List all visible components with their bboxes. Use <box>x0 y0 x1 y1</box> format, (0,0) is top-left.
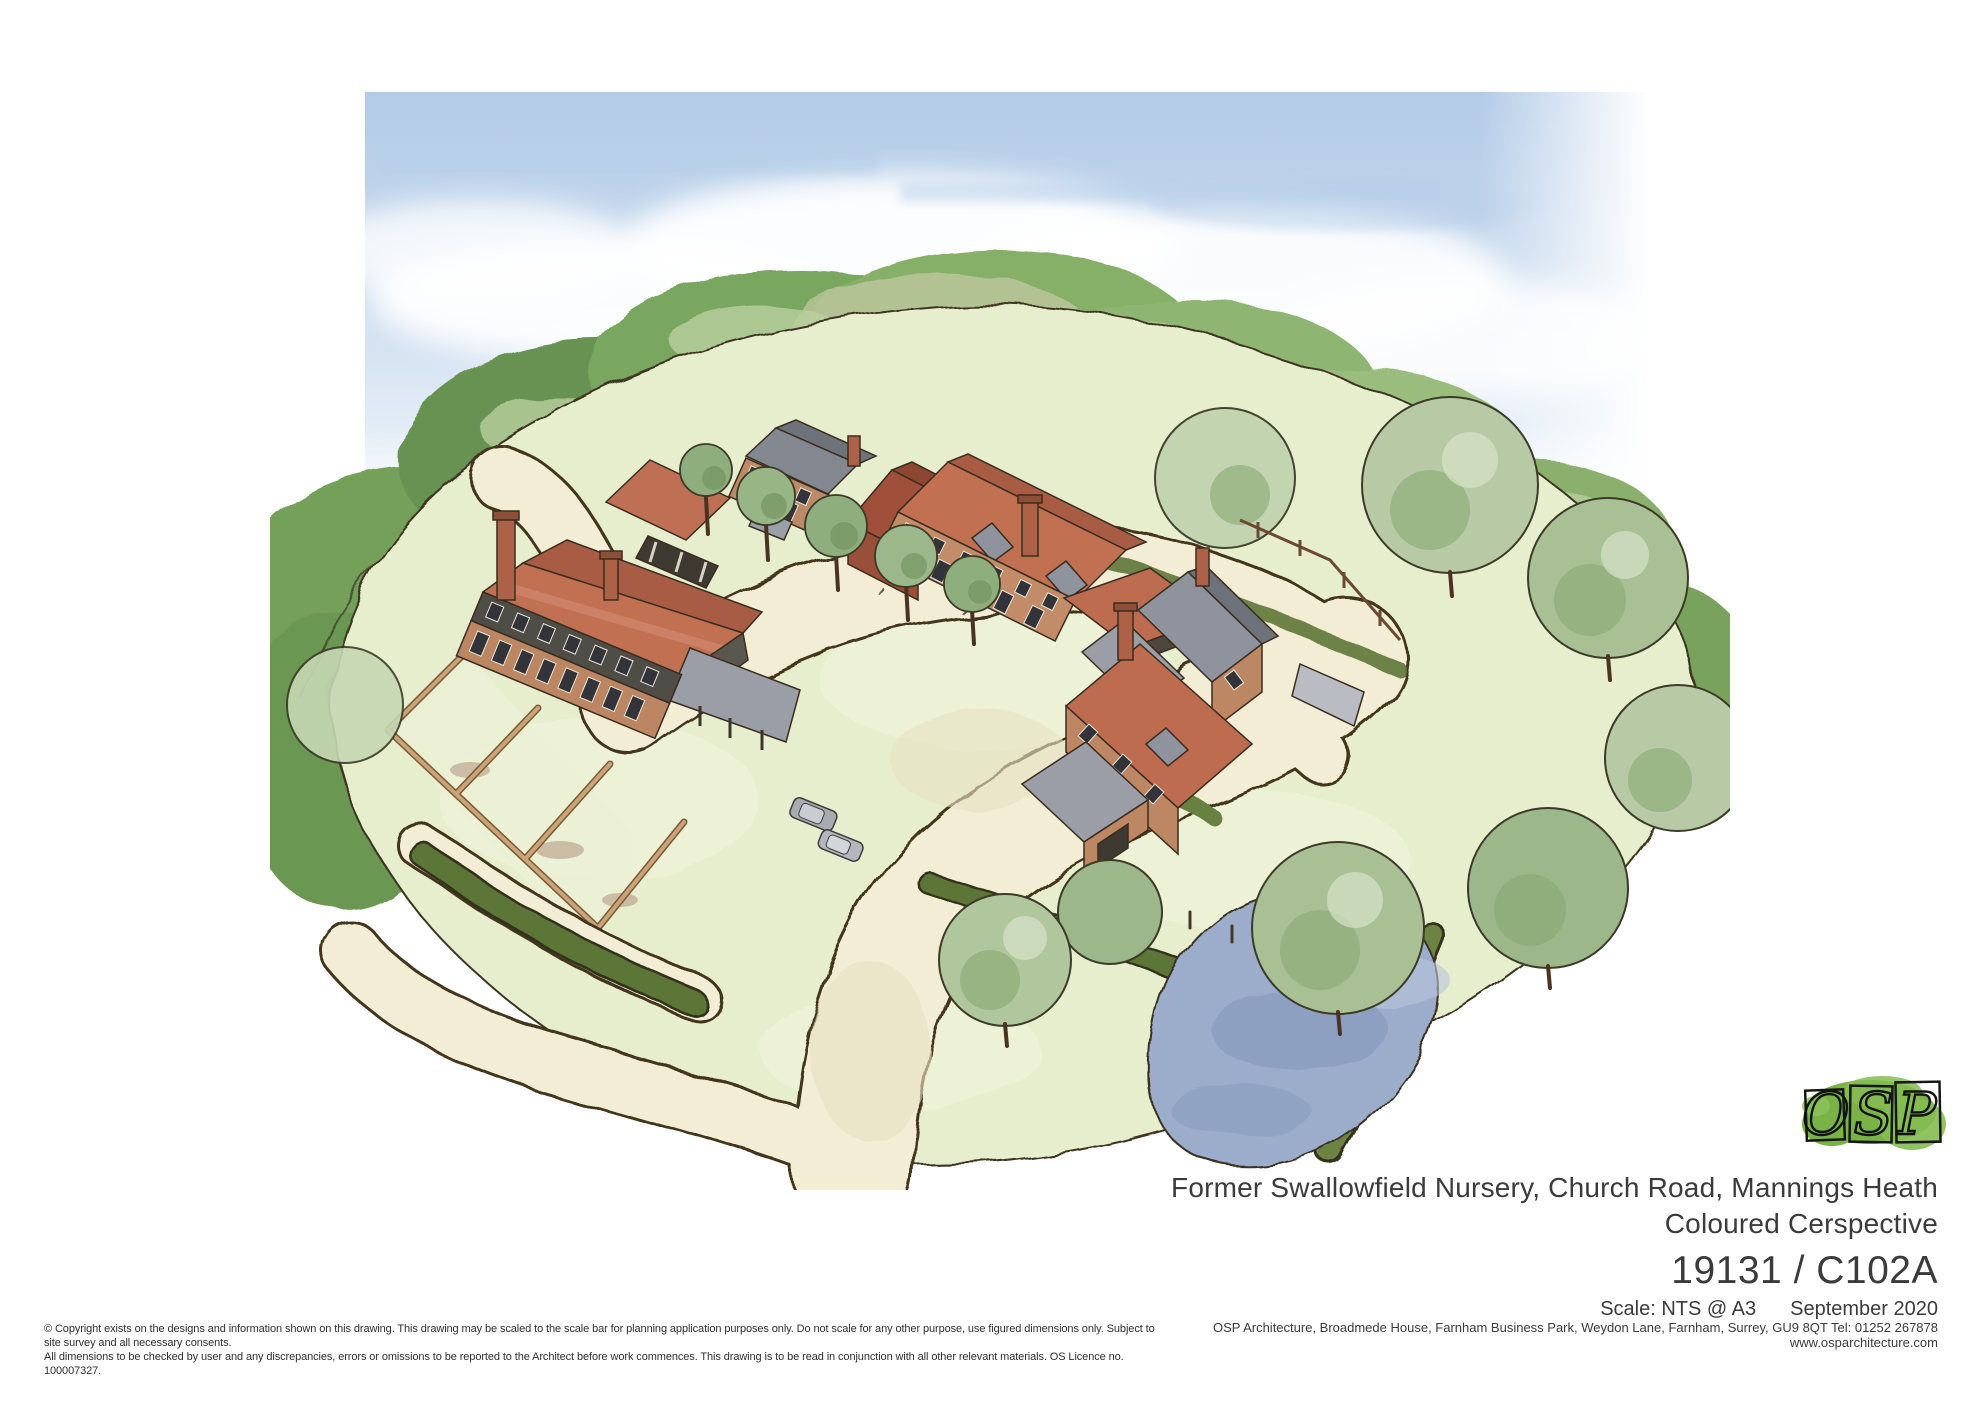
copyright-line-1: © Copyright exists on the designs and in… <box>44 1322 1174 1350</box>
osp-logo: OSP <box>1792 1068 1952 1162</box>
drawing-date: September 2020 <box>1790 1298 1938 1320</box>
drawing-sheet: OSP Former Swallowfield Nursery, Church … <box>0 0 1984 1403</box>
title-block: Former Swallowfield Nursery, Church Road… <box>1171 1170 1938 1322</box>
drawing-title: Coloured Cerspective <box>1171 1206 1938 1242</box>
scale-and-date: Scale: NTS @ A3September 2020 <box>1171 1296 1938 1322</box>
scale-label: Scale: NTS @ A3 <box>1600 1298 1756 1320</box>
project-title: Former Swallowfield Nursery, Church Road… <box>1171 1170 1938 1206</box>
site-perspective-illustration <box>270 80 1730 1190</box>
copyright-notes: © Copyright exists on the designs and in… <box>44 1322 1174 1378</box>
firm-website: www.osparchitecture.com <box>1213 1335 1938 1350</box>
firm-contact: OSP Architecture, Broadmede House, Farnh… <box>1213 1320 1938 1350</box>
firm-address: OSP Architecture, Broadmede House, Farnh… <box>1213 1320 1938 1335</box>
drawing-number: 19131 / C102A <box>1171 1248 1938 1294</box>
osp-logo-text: OSP <box>1802 1080 1940 1148</box>
copyright-line-2: All dimensions to be checked by user and… <box>44 1350 1174 1378</box>
